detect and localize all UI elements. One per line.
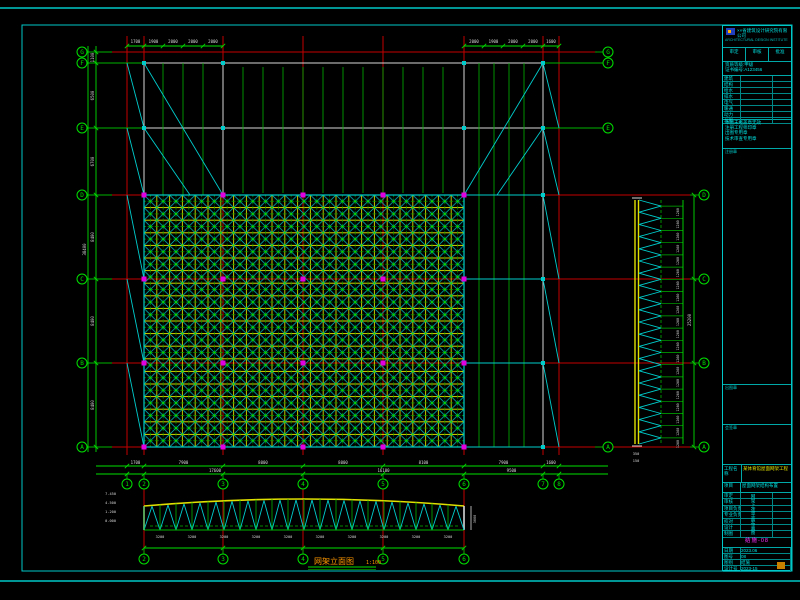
org-name: ××省建筑设计研究院有限公司: [737, 28, 790, 38]
bracing-diagonal: [543, 195, 559, 279]
truss-diagonal: [639, 304, 661, 310]
dim-text: 1700: [131, 460, 141, 465]
dim-text: 2000: [208, 39, 218, 44]
dim-text: 1260: [676, 342, 680, 350]
dim-text: 1700: [131, 39, 141, 44]
box-label: 会签章: [725, 426, 737, 431]
bracing-diagonal: [543, 279, 559, 363]
dim-text: 1600: [546, 460, 556, 465]
bracing-diagonal: [497, 128, 543, 195]
bottom-table: 日期2023.06图号08图别结施设计号2023-15: [723, 548, 791, 572]
joint-node: [541, 361, 545, 365]
joint-node: [462, 126, 466, 130]
truss-diagonal: [304, 500, 312, 530]
grid-bubble-label: 4: [301, 481, 305, 488]
truss-diagonal: [152, 506, 160, 530]
truss-diagonal: [639, 298, 661, 304]
dim-text: 3200: [188, 535, 197, 539]
grid-bubble-label: 5: [381, 481, 385, 488]
grid-bubble-label: 5: [381, 556, 385, 563]
grid-bubble-label: F: [80, 60, 84, 67]
dim-text: 1260: [676, 403, 680, 411]
joint-node: [541, 277, 545, 281]
stamp-box-3: 会签章: [723, 425, 791, 465]
dim-text: 1260: [676, 330, 680, 338]
truss-diagonal: [639, 438, 661, 444]
truss-diagonal: [639, 346, 661, 352]
level-text: 0.000: [105, 519, 116, 523]
bracing-diagonal: [127, 128, 144, 195]
approve-row: 审定审核批准: [723, 48, 791, 62]
dim-text: 7900: [179, 460, 189, 465]
dim-text: 1900: [149, 39, 159, 44]
truss-diagonal: [639, 407, 661, 413]
truss-diagonal: [639, 371, 661, 377]
grid-bubble-label: 4: [301, 556, 305, 563]
truss-diagonal: [639, 285, 661, 291]
truss-diagonal: [639, 231, 661, 237]
item-label: 项目: [723, 483, 741, 492]
support-node: [142, 445, 147, 450]
bracing-diagonal: [144, 63, 223, 195]
dim-text: 2000: [469, 39, 479, 44]
dim-text: 1260: [676, 318, 680, 326]
support-node: [301, 193, 306, 198]
grid-bubble-label: 7: [541, 481, 545, 488]
stamp-box-2: 出图章: [723, 385, 791, 425]
level-text: 7.450: [105, 492, 116, 496]
dim-text: 8400: [90, 232, 95, 242]
org-subtitle: ARCHITECTURAL DESIGN INSTITUTE: [725, 38, 790, 42]
truss-diagonal: [639, 279, 661, 285]
grid-bubble-label: 3: [221, 481, 225, 488]
bracing-diagonal: [543, 363, 559, 447]
dim-text: 8400: [90, 400, 95, 410]
truss-diagonal: [639, 243, 661, 249]
truss-diagonal: [639, 218, 661, 224]
dim-text: 3200: [156, 535, 165, 539]
dim-text: 1260: [676, 306, 680, 314]
truss-diagonal: [344, 500, 352, 530]
dim-text: 7900: [499, 460, 509, 465]
dim-text: 8000: [338, 460, 348, 465]
dim-text: 3200: [444, 535, 453, 539]
grid-bubble-label: A: [606, 444, 610, 451]
truss-diagonal: [639, 322, 661, 328]
drawing-number: 结施-08: [723, 538, 791, 548]
dim-text: 1900: [489, 39, 499, 44]
grid-bubble-label: B: [80, 360, 84, 367]
truss-diagonal: [639, 224, 661, 230]
dim-text: 3200: [316, 535, 325, 539]
grid-bubble-label: A: [80, 444, 84, 451]
joint-node: [221, 61, 225, 65]
dim-text: 1260: [676, 367, 680, 375]
dim-text: 2000: [508, 39, 518, 44]
support-node: [301, 277, 306, 282]
level-text: 1.200: [105, 510, 116, 514]
grid-bubble-label: G: [80, 49, 84, 56]
truss-diagonal: [360, 501, 368, 530]
truss-diagonal: [352, 501, 360, 530]
joint-node: [541, 61, 545, 65]
grid-bubble-label: 6: [462, 481, 466, 488]
dim-text: 1260: [676, 391, 680, 399]
joint-node: [541, 445, 545, 449]
title-block-header: ××省建筑设计研究院有限公司 ARCHITECTURAL DESIGN INST…: [723, 26, 791, 48]
truss-diagonal: [256, 500, 264, 530]
support-node: [221, 445, 226, 450]
box-label: 注册章: [725, 150, 737, 155]
dim-text: 1260: [676, 416, 680, 424]
grid-bubble-label: 1: [125, 481, 129, 488]
joint-node: [541, 193, 545, 197]
dim-text: 1600: [546, 39, 556, 44]
truss-diagonal: [639, 267, 661, 273]
item-value: 屋面网架结构布置: [741, 483, 791, 492]
support-node: [301, 361, 306, 366]
truss-diagonal: [639, 255, 661, 261]
support-node: [381, 445, 386, 450]
truss-diagonal: [456, 506, 464, 530]
truss-diagonal: [312, 500, 320, 530]
truss-diagonal: [639, 310, 661, 316]
truss-diagonal: [248, 501, 256, 530]
dim-text: 1260: [676, 428, 680, 436]
truss-diagonal: [639, 426, 661, 432]
grid-bubble-label: 2: [142, 556, 146, 563]
dim-text: 9500: [507, 468, 517, 473]
support-node: [462, 193, 467, 198]
support-node: [381, 361, 386, 366]
dim-text: 2000: [528, 39, 538, 44]
truss-diagonal: [272, 500, 280, 530]
joint-node: [142, 61, 146, 65]
truss-diagonal: [639, 383, 661, 389]
support-node: [462, 361, 467, 366]
bracing-diagonal: [543, 128, 559, 195]
support-node: [142, 277, 147, 282]
drawing-scale: 1:100: [366, 560, 381, 566]
grid-bubble-label: C: [702, 276, 706, 283]
dim-text: 8100: [419, 460, 429, 465]
truss-diagonal: [639, 414, 661, 420]
mini-table: 审定审核项目负责专业负责校对设计制图 网架上弦平面布置图: [723, 493, 791, 538]
joint-node: [142, 126, 146, 130]
dim-text: 1260: [676, 379, 680, 387]
truss-diagonal: [639, 401, 661, 407]
grid-bubble-label: B: [702, 360, 706, 367]
truss-diagonal: [639, 377, 661, 383]
truss-diagonal: [280, 500, 288, 530]
support-node: [142, 193, 147, 198]
dim-text: 1260: [676, 269, 680, 277]
drawing-name-vertical: 网架上弦平面布置图: [751, 494, 756, 537]
truss-diagonal: [639, 316, 661, 322]
dim-text: 3200: [284, 535, 293, 539]
truss-diagonal: [639, 365, 661, 371]
dim-text: 3000: [473, 515, 477, 524]
truss-diagonal: [639, 273, 661, 279]
truss-diagonal: [639, 334, 661, 340]
drawing-title: 网架立面图: [314, 556, 354, 566]
truss-diagonal: [320, 500, 328, 530]
support-node: [221, 277, 226, 282]
item-row: 项目 屋面网架结构布置: [723, 483, 791, 493]
grid-bubble-label: C: [80, 276, 84, 283]
grid-bubble-label: D: [702, 192, 706, 199]
bracing-diagonal: [127, 195, 144, 279]
grid-bubble-label: 3: [221, 556, 225, 563]
grid-bubble-label: D: [80, 192, 84, 199]
truss-diagonal: [639, 206, 661, 212]
truss-diagonal: [639, 353, 661, 359]
grid-bubble-label: F: [606, 60, 610, 67]
support-node: [381, 193, 386, 198]
dim-text: 3200: [380, 535, 389, 539]
cad-sheet: GFEDCBAGFEA12345678170019002000200020002…: [0, 0, 800, 600]
dim-text: 1260: [676, 440, 680, 448]
support-node: [301, 445, 306, 450]
bracing-diagonal: [127, 279, 144, 363]
dim-text: 1260: [676, 257, 680, 265]
joint-node: [462, 61, 466, 65]
grid-bubble-label: 2: [142, 481, 146, 488]
dim-text: 150: [633, 459, 640, 463]
grid-bubble-label: A: [702, 444, 706, 451]
project-label: 工程名称: [723, 465, 742, 482]
note-line: 技术审查专用章: [723, 136, 791, 141]
joint-node: [221, 126, 225, 130]
bracing-diagonal: [543, 63, 559, 128]
design-institute-logo-icon: [726, 28, 735, 35]
dim-text: 6700: [90, 156, 95, 166]
dim-text: 17600: [209, 468, 222, 473]
dim-text: 1260: [676, 220, 680, 228]
level-text: 4.500: [105, 501, 116, 505]
grid-bubble-label: E: [80, 125, 84, 132]
support-node: [462, 445, 467, 450]
bracing-diagonal: [127, 63, 144, 128]
notes: 本图未经盖章无效注册工程师印章出图专用章技术审查专用章: [723, 120, 791, 149]
support-node: [142, 361, 147, 366]
truss-diagonal: [639, 237, 661, 243]
project-row: 工程名称 某体育馆屋面网架工程: [723, 465, 791, 483]
truss-diagonal: [328, 500, 336, 530]
seal-stamp-icon: [777, 562, 785, 569]
stamp-box-1: 注册章: [723, 149, 791, 385]
dim-text: 16100: [377, 468, 390, 473]
cert-line: 证书编号:A123456: [723, 67, 791, 72]
truss-diagonal: [448, 506, 456, 530]
support-node: [381, 277, 386, 282]
support-node: [221, 193, 226, 198]
dim-text: 8400: [90, 316, 95, 326]
truss-diagonal: [639, 328, 661, 334]
cert-lines: 资质等级:甲级 证书编号:A123456: [723, 62, 791, 76]
dim-text: 3200: [348, 535, 357, 539]
truss-diagonal: [639, 432, 661, 438]
truss-diagonal: [639, 420, 661, 426]
dim-text: 1100: [90, 52, 95, 62]
box-label: 出图章: [725, 386, 737, 391]
dim-text: 2000: [168, 39, 178, 44]
truss-diagonal: [144, 506, 152, 530]
truss-diagonal: [288, 500, 296, 530]
dim-text: 6500: [90, 90, 95, 100]
support-node: [462, 277, 467, 282]
space-frame-grid: [144, 195, 464, 447]
approve-cell: 审核: [746, 48, 769, 61]
sign-table: 建筑结构给水排水电气暖通动力总图: [723, 76, 791, 120]
truss-diagonal: [639, 261, 661, 267]
bracing-diagonal: [127, 363, 144, 447]
approve-cell: 批准: [769, 48, 791, 61]
truss-diagonal: [639, 200, 661, 206]
dim-text: 1260: [676, 294, 680, 302]
truss-diagonal: [639, 395, 661, 401]
grid-bubble-label: 6: [462, 556, 466, 563]
truss-diagonal: [639, 212, 661, 218]
dim-text: 3200: [412, 535, 421, 539]
support-node: [221, 361, 226, 366]
truss-diagonal: [639, 389, 661, 395]
dim-text: 25200: [687, 313, 692, 326]
bracing-diagonal: [464, 63, 543, 195]
truss-diagonal: [639, 292, 661, 298]
dim-text: 8000: [258, 460, 268, 465]
dim-text: 1260: [676, 245, 680, 253]
truss-diagonal: [639, 359, 661, 365]
dim-text: 3200: [220, 535, 229, 539]
dim-text: 350: [633, 452, 640, 456]
truss-diagonal: [336, 500, 344, 530]
dim-text: 1260: [676, 208, 680, 216]
approve-cell: 审定: [723, 48, 746, 61]
dim-text: 2000: [188, 39, 198, 44]
truss-diagonal: [264, 500, 272, 530]
dim-text: 38400: [82, 243, 87, 256]
cad-drawing: GFEDCBAGFEA12345678170019002000200020002…: [0, 0, 800, 600]
truss-diagonal: [240, 501, 248, 530]
mini-table-row: 制图: [723, 531, 791, 537]
dim-text: 1260: [676, 281, 680, 289]
grid-bubble-label: E: [606, 125, 610, 132]
truss-diagonal: [639, 340, 661, 346]
project-name: 某体育馆屋面网架工程: [742, 465, 791, 482]
dim-text: 1260: [676, 355, 680, 363]
title-block: ××省建筑设计研究院有限公司 ARCHITECTURAL DESIGN INST…: [722, 25, 792, 571]
grid-bubble-label: G: [606, 49, 610, 56]
joint-node: [541, 126, 545, 130]
dim-text: 1260: [676, 233, 680, 241]
dim-text: 3200: [252, 535, 261, 539]
grid-bubble-label: 8: [557, 481, 561, 488]
truss-diagonal: [639, 249, 661, 255]
